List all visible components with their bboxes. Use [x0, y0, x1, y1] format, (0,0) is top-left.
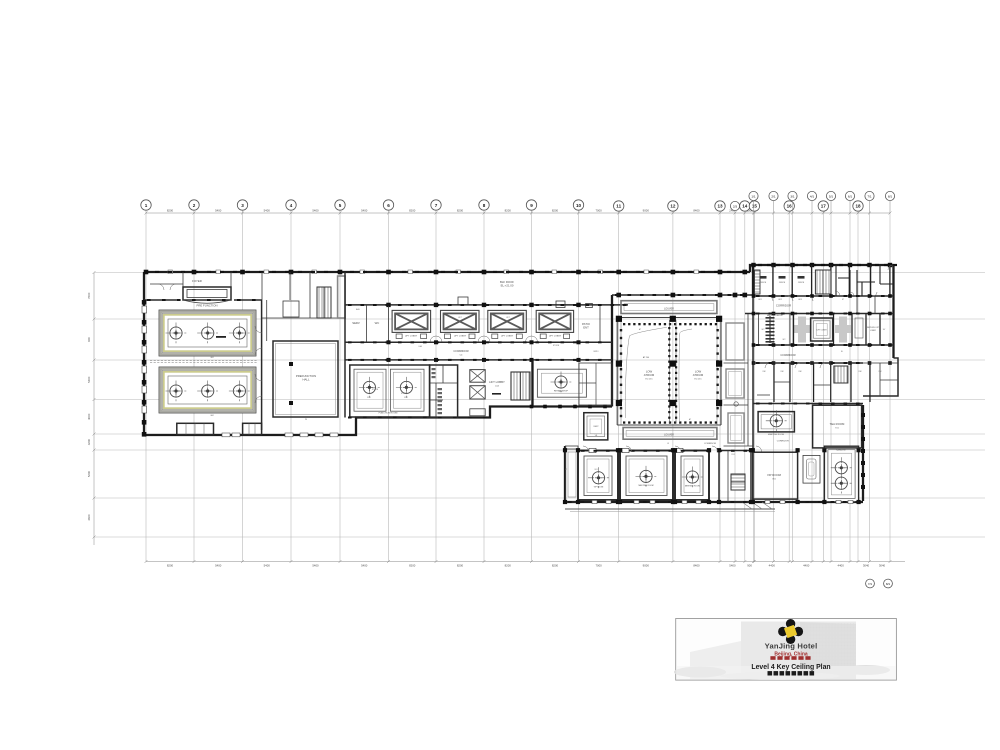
- svg-text:LIFT LOBBY: LIFT LOBBY: [817, 330, 828, 332]
- svg-text:8200: 8200: [167, 564, 174, 568]
- svg-text:5400: 5400: [729, 564, 736, 568]
- svg-text:EL:13.5: EL:13.5: [646, 378, 654, 380]
- svg-text:1: 1: [145, 203, 148, 208]
- svg-text:GR2: GR2: [778, 299, 782, 301]
- svg-text:LOBBY: LOBBY: [870, 330, 877, 332]
- svg-text:4400: 4400: [803, 564, 810, 568]
- svg-text:8200: 8200: [167, 208, 174, 212]
- svg-text:4000: 4000: [87, 413, 91, 420]
- svg-text:8: 8: [483, 203, 486, 208]
- svg-text:5400: 5400: [312, 208, 319, 212]
- svg-text:3: 3: [241, 203, 244, 208]
- svg-text:CORRIDOR: CORRIDOR: [777, 440, 789, 442]
- svg-text:15: 15: [752, 204, 758, 209]
- svg-text:AT 200: AT 200: [643, 356, 650, 359]
- svg-text:LOUVER: LOUVER: [664, 434, 674, 437]
- svg-text:ATRIUM: ATRIUM: [644, 373, 655, 377]
- svg-text:5: 5: [339, 203, 342, 208]
- svg-text:8200: 8200: [457, 208, 464, 212]
- svg-text:18: 18: [855, 204, 861, 209]
- svg-text:PATIO: PATIO: [593, 350, 599, 353]
- svg-text:RM: RM: [799, 371, 802, 373]
- svg-text:YanJing Hotel: YanJing Hotel: [765, 641, 818, 650]
- svg-text:8200: 8200: [505, 564, 512, 568]
- svg-text:V01: V01: [594, 469, 597, 471]
- svg-text:ENT: ENT: [583, 325, 589, 329]
- svg-text:8200: 8200: [409, 564, 416, 568]
- svg-text:EL:13.5: EL:13.5: [695, 378, 703, 380]
- svg-text:4600: 4600: [87, 514, 91, 521]
- svg-text:2/3: 2/3: [733, 205, 738, 209]
- svg-text:MEETING ROOM: MEETING ROOM: [768, 434, 784, 436]
- svg-text:PRE FUNCTION: PRE FUNCTION: [197, 304, 218, 308]
- svg-text:5400: 5400: [264, 564, 271, 568]
- svg-text:14: 14: [742, 204, 748, 209]
- svg-text:ATRIUM: ATRIUM: [693, 373, 704, 377]
- svg-text:VIP ROOM: VIP ROOM: [767, 473, 782, 477]
- svg-text:7000: 7000: [595, 208, 602, 212]
- svg-text:VIP ROOM: VIP ROOM: [594, 486, 604, 488]
- svg-text:ST4: ST4: [731, 454, 734, 456]
- svg-text:16: 16: [787, 204, 793, 209]
- svg-text:5400: 5400: [361, 564, 368, 568]
- svg-text:GB1: GB1: [210, 357, 214, 359]
- svg-text:5400: 5400: [87, 376, 91, 383]
- svg-text:OFFICE: OFFICE: [779, 282, 786, 284]
- svg-text:8200: 8200: [552, 564, 559, 568]
- svg-text:3040: 3040: [879, 564, 886, 568]
- svg-text:CORRIDOR: CORRIDOR: [780, 353, 795, 357]
- svg-text:FOYER: FOYER: [192, 279, 202, 283]
- svg-text:3/1: 3/1: [790, 195, 795, 199]
- svg-text:2: 2: [193, 203, 196, 208]
- svg-text:12: 12: [670, 204, 676, 209]
- svg-text:7: 7: [435, 203, 438, 208]
- svg-text:9000: 9000: [643, 564, 650, 568]
- svg-text:3040: 3040: [863, 564, 870, 568]
- svg-text:STORE: STORE: [553, 345, 560, 347]
- svg-text:8/1: 8/1: [888, 195, 893, 199]
- svg-text:7/1: 7/1: [867, 195, 872, 199]
- svg-text:8400: 8400: [693, 564, 700, 568]
- svg-text:VEST: VEST: [593, 426, 599, 428]
- svg-text:13: 13: [717, 204, 723, 209]
- svg-text:LIFT LOBBY: LIFT LOBBY: [454, 336, 467, 338]
- svg-text:HALL: HALL: [303, 378, 310, 382]
- svg-text:5400: 5400: [215, 208, 222, 212]
- svg-text:900: 900: [747, 564, 752, 568]
- svg-text:LOUVER: LOUVER: [664, 308, 674, 311]
- svg-text:MEETING ROOM: MEETING ROOM: [638, 485, 653, 487]
- svg-text:5400: 5400: [312, 564, 319, 568]
- svg-text:9: 9: [530, 203, 533, 208]
- svg-text:OFFICE: OFFICE: [760, 282, 767, 284]
- svg-text:LIFT LOBBY: LIFT LOBBY: [489, 380, 505, 384]
- svg-text:GB2: GB2: [210, 415, 214, 417]
- svg-text:SERVICE LIFT: SERVICE LIFT: [867, 327, 880, 329]
- svg-text:1/1: 1/1: [751, 195, 756, 199]
- svg-text:5/1: 5/1: [829, 195, 834, 199]
- svg-text:FR1: FR1: [367, 397, 370, 399]
- svg-text:LIFT LOBBY: LIFT LOBBY: [405, 336, 418, 338]
- svg-text:RM: RM: [781, 371, 784, 373]
- svg-text:RM: RM: [763, 371, 766, 373]
- svg-text:FR2: FR2: [404, 397, 407, 399]
- svg-text:4400: 4400: [838, 564, 845, 568]
- svg-text:6/1: 6/1: [848, 195, 853, 199]
- svg-text:RM: RM: [859, 371, 862, 373]
- svg-text:SERV: SERV: [352, 321, 360, 325]
- svg-text:MEETING ROOM: MEETING ROOM: [685, 486, 700, 488]
- svg-text:KARAOKE: KARAOKE: [836, 449, 846, 452]
- svg-text:OFFICE: OFFICE: [798, 282, 805, 284]
- svg-text:8200: 8200: [409, 208, 416, 212]
- svg-text:4/1: 4/1: [810, 195, 815, 199]
- svg-text:LIFT LOBBY: LIFT LOBBY: [501, 336, 514, 338]
- svg-text:5400: 5400: [264, 208, 271, 212]
- svg-text:7000: 7000: [595, 564, 602, 568]
- svg-text:EL:+21.00: EL:+21.00: [501, 283, 514, 287]
- svg-text:LIFT LOBBY: LIFT LOBBY: [549, 336, 562, 338]
- svg-text:5400: 5400: [361, 208, 368, 212]
- svg-text:900: 900: [87, 337, 91, 342]
- svg-text:CORRIDOR: CORRIDOR: [453, 349, 468, 353]
- svg-text:2/1: 2/1: [771, 195, 776, 199]
- svg-text:7/1: 7/1: [868, 582, 873, 586]
- svg-text:7600: 7600: [87, 292, 91, 299]
- svg-text:11: 11: [616, 204, 621, 209]
- svg-text:6: 6: [387, 203, 390, 208]
- svg-text:RM: RM: [879, 371, 882, 373]
- svg-text:8/1: 8/1: [886, 582, 891, 586]
- svg-text:5400: 5400: [215, 564, 222, 568]
- svg-text:CORRIDOR: CORRIDOR: [776, 304, 791, 308]
- svg-text:4200: 4200: [87, 438, 91, 445]
- svg-text:STORE: STORE: [401, 393, 408, 395]
- svg-text:8200: 8200: [457, 564, 464, 568]
- svg-text:17: 17: [821, 204, 827, 209]
- svg-text:GR1: GR1: [758, 299, 762, 301]
- svg-text:5200: 5200: [87, 470, 91, 477]
- svg-text:9000: 9000: [643, 208, 650, 212]
- svg-text:SL: SL: [841, 351, 843, 353]
- svg-text:8400: 8400: [693, 208, 700, 212]
- svg-text:WC: WC: [375, 321, 380, 325]
- svg-text:4: 4: [290, 203, 293, 208]
- svg-text:STORE: STORE: [372, 389, 379, 391]
- svg-text:FUNCTION ROOM: FUNCTION ROOM: [379, 413, 398, 415]
- svg-text:4400: 4400: [769, 564, 776, 568]
- svg-text:TEA ROOM: TEA ROOM: [830, 422, 845, 426]
- svg-text:10: 10: [576, 203, 582, 208]
- svg-text:CORRIDOR: CORRIDOR: [704, 443, 716, 445]
- svg-text:8200: 8200: [552, 208, 559, 212]
- svg-text:8200: 8200: [505, 208, 512, 212]
- svg-text:Level 4 Key Ceiling Plan: Level 4 Key Ceiling Plan: [751, 664, 830, 671]
- svg-text:GR3: GR3: [798, 299, 802, 301]
